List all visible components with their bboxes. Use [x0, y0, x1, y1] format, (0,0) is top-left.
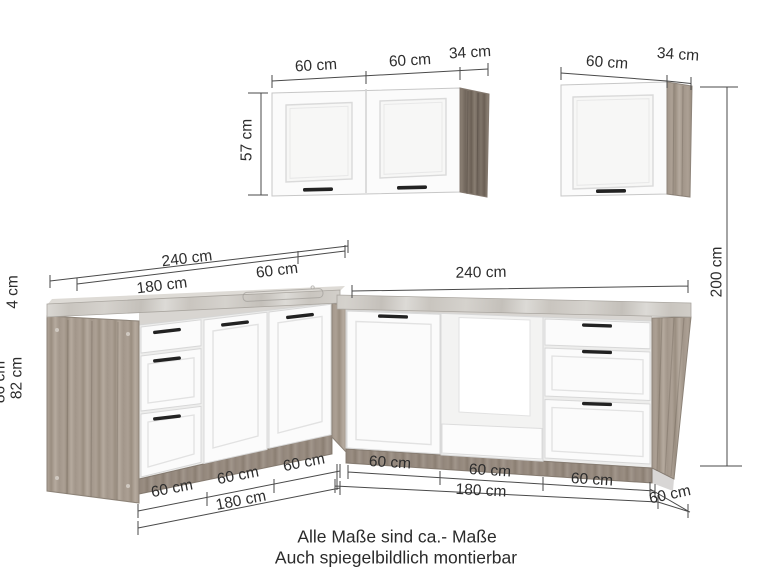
base-left-door-1 — [204, 312, 267, 463]
wall-left-door-2 — [380, 99, 446, 190]
dim-base-right-unit2: 60 cm — [468, 462, 511, 480]
dim-total-height: 200 cm — [709, 247, 725, 298]
dim-right-run-total: 240 cm — [455, 265, 506, 281]
corner-strip — [332, 303, 346, 452]
base-left-door-2 — [269, 304, 331, 448]
dim-wall-left-door2: 60 cm — [388, 52, 431, 70]
dim-wall-right-door: 60 cm — [585, 54, 628, 72]
dim-base-right-unit1: 60 cm — [368, 454, 411, 472]
base-left-end-panel — [47, 316, 139, 503]
wall-cabinet-left — [272, 88, 489, 197]
footer-note-1: Alle Maße sind ca.- Maße — [297, 527, 496, 548]
footer-note-2: Auch spiegelbildlich montierbar — [275, 548, 517, 569]
wall-left-door-1 — [286, 103, 352, 192]
dim-wall-right-depth: 34 cm — [656, 46, 699, 64]
base-right-door — [347, 311, 440, 454]
appliance-cavity — [441, 313, 543, 461]
wall-left-side-panel — [460, 88, 489, 197]
dim-base-right-unit3: 60 cm — [570, 471, 613, 489]
wall-right-handle — [596, 189, 626, 193]
dim-base-total-height: 86 cm — [0, 361, 8, 403]
dim-worktop-thickness: 4 cm — [5, 275, 21, 309]
dim-base-right-front: 180 cm — [455, 482, 507, 500]
dim-wall-left-height: 57 cm — [239, 119, 255, 161]
dim-wall-left-door1: 60 cm — [294, 57, 337, 75]
wall-right-side-panel — [667, 82, 692, 197]
base-left-drawer-unit — [141, 320, 201, 477]
dim-wall-left-depth: 34 cm — [448, 44, 491, 62]
base-left-run — [47, 299, 346, 503]
wall-cabinet-right — [561, 82, 692, 197]
base-right-drawer-unit — [545, 319, 650, 464]
kitchen-dimension-diagram: 60 cm 60 cm 34 cm 57 cm 60 cm 34 cm 200 … — [0, 0, 770, 578]
dim-carcass-height: 82 cm — [9, 357, 25, 399]
wall-right-door — [573, 95, 653, 193]
